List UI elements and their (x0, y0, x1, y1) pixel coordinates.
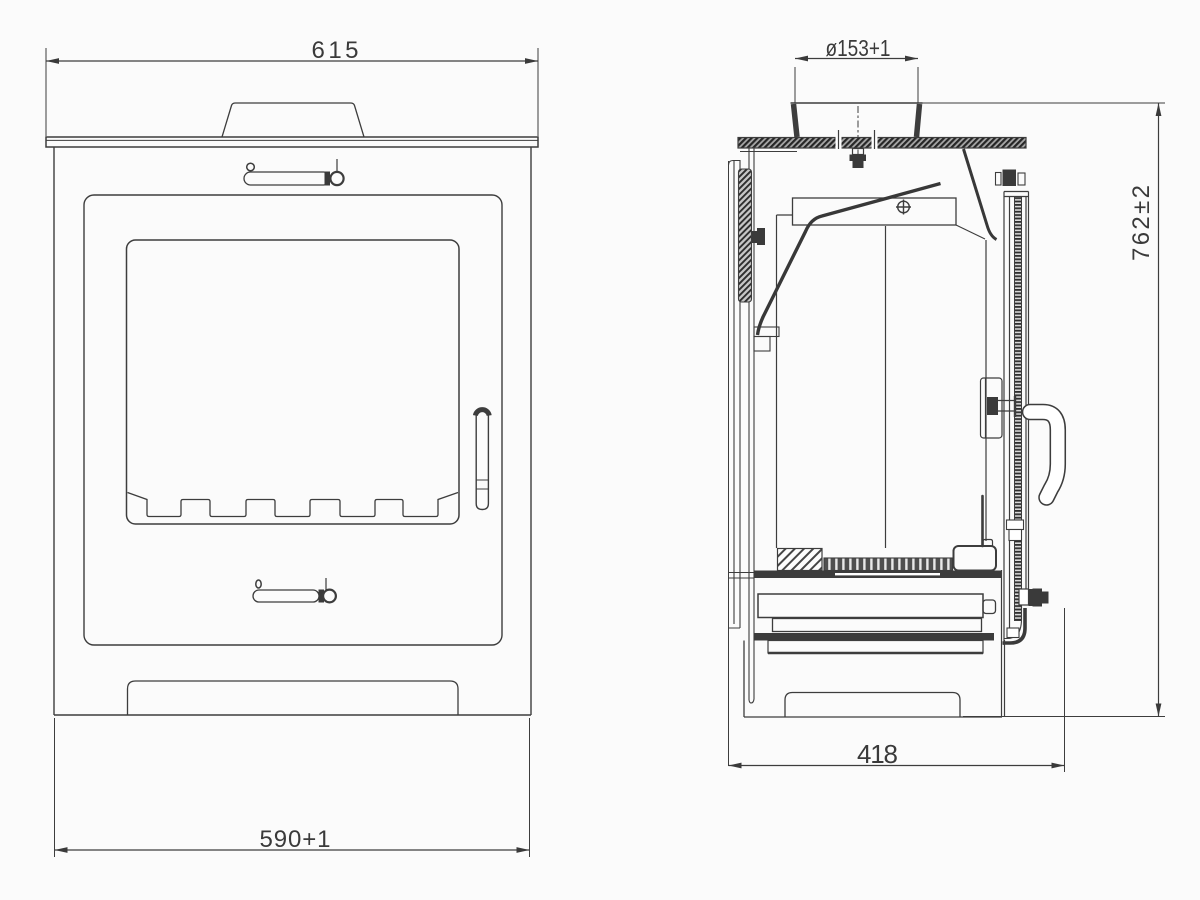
svg-text:615: 615 (312, 37, 359, 64)
svg-text:590+1: 590+1 (260, 826, 331, 853)
svg-text:762±2: 762±2 (1128, 185, 1155, 261)
svg-text:ø153+1: ø153+1 (826, 35, 891, 61)
svg-text:418: 418 (857, 739, 898, 769)
